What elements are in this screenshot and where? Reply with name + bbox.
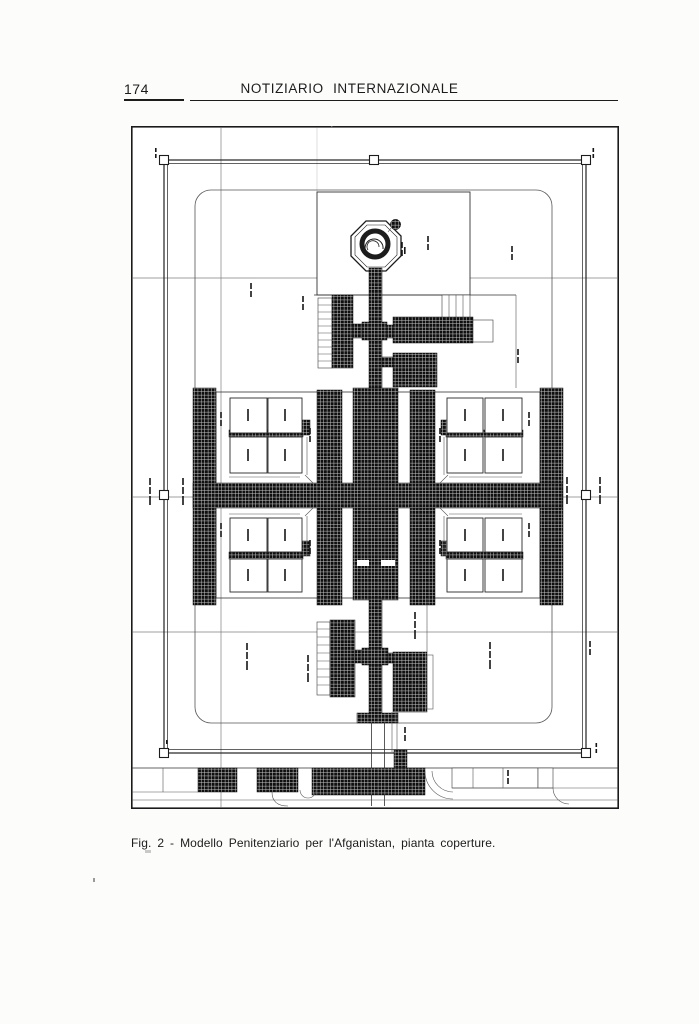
prison-plan-drawing	[131, 126, 619, 809]
cell-complex	[193, 388, 563, 605]
scan-artifact-smudge	[145, 850, 151, 853]
north-ladder-block	[318, 295, 353, 368]
north-east-block	[393, 317, 473, 343]
south-ladder-block	[317, 620, 355, 697]
figure-plan	[131, 126, 619, 809]
document-page: 174 NOTIZIARIO INTERNAZIONALE	[0, 0, 699, 1024]
gate-block-mid	[257, 768, 298, 792]
south-east-block	[393, 652, 427, 712]
header-rule-main	[190, 100, 618, 101]
header-rule-left	[124, 99, 184, 101]
entrance-zone	[132, 768, 618, 806]
cross-corridor	[193, 483, 562, 508]
north-south-block	[393, 353, 437, 387]
scan-artifact-dot	[93, 878, 95, 882]
figure-caption: Fig. 2 - Modello Penitenziario per l'Afg…	[131, 836, 495, 850]
header-title: NOTIZIARIO INTERNAZIONALE	[0, 81, 699, 96]
tower-vent	[390, 219, 400, 229]
stairs-east	[442, 295, 470, 318]
gate-block-main	[312, 768, 425, 795]
gate-block-west	[198, 768, 237, 792]
